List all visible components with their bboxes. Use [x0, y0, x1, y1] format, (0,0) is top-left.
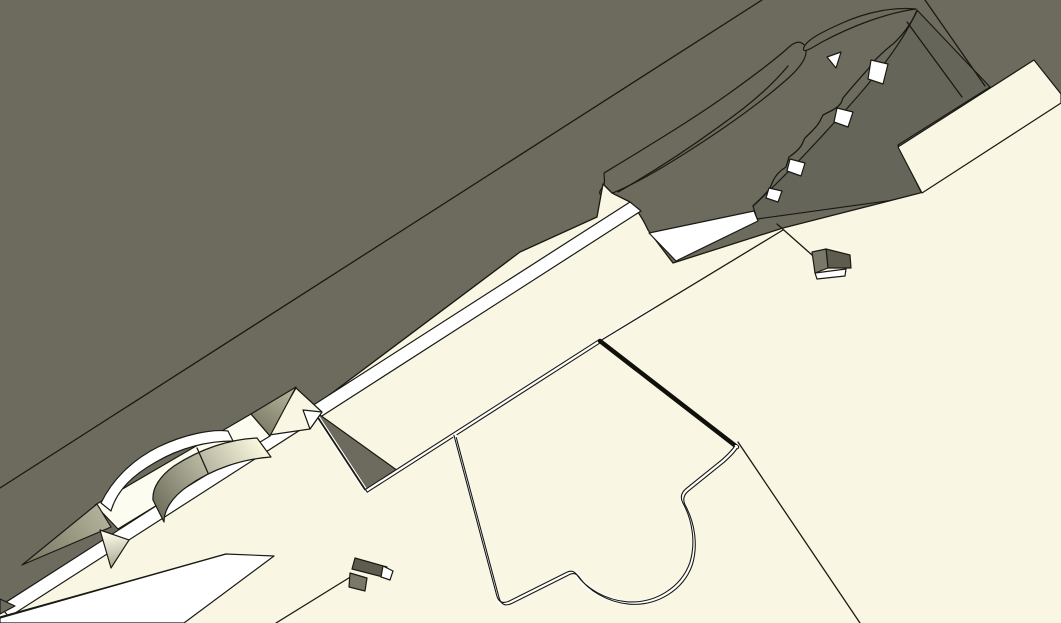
cad-3d-viewport[interactable]: [0, 0, 1061, 623]
model-canvas[interactable]: [0, 0, 1061, 623]
block-side-face: [812, 249, 828, 273]
